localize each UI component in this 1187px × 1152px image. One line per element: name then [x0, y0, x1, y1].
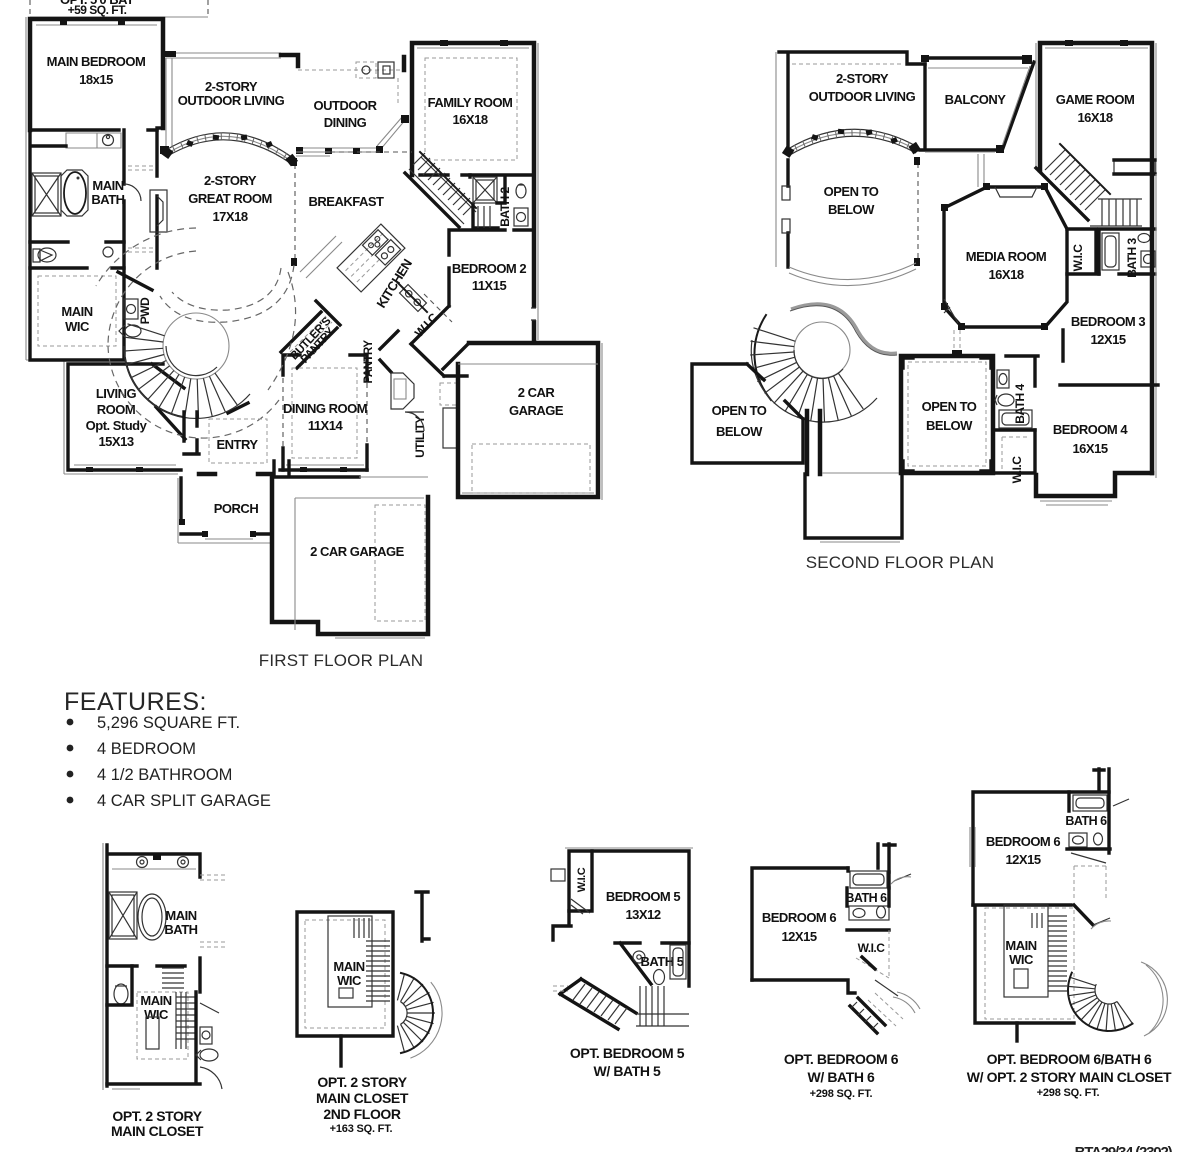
- svg-text:MAIN: MAIN: [92, 178, 123, 193]
- svg-text:MEDIA ROOM: MEDIA ROOM: [966, 249, 1046, 264]
- svg-text:SECOND FLOOR PLAN: SECOND FLOOR PLAN: [806, 553, 995, 572]
- svg-text:BEDROOM 4: BEDROOM 4: [1053, 422, 1129, 437]
- svg-text:+298 SQ. FT.: +298 SQ. FT.: [810, 1088, 873, 1100]
- svg-text:FIRST FLOOR PLAN: FIRST FLOOR PLAN: [259, 651, 423, 670]
- svg-text:OPT. 2 STORY: OPT. 2 STORY: [112, 1108, 202, 1124]
- svg-text:BATH 2: BATH 2: [498, 186, 512, 226]
- svg-text:LIVING: LIVING: [96, 386, 137, 401]
- svg-text:OPT. 2 STORY: OPT. 2 STORY: [317, 1074, 407, 1090]
- svg-text:FAMILY ROOM: FAMILY ROOM: [428, 95, 513, 110]
- svg-text:BEDROOM 3: BEDROOM 3: [1071, 314, 1146, 329]
- svg-text:WIC: WIC: [1009, 952, 1034, 967]
- svg-text:2-STORY: 2-STORY: [205, 79, 258, 94]
- svg-text:16X18: 16X18: [452, 112, 487, 127]
- svg-text:16X15: 16X15: [1072, 441, 1107, 456]
- svg-text:GAME ROOM: GAME ROOM: [1056, 92, 1135, 107]
- svg-text:DINING: DINING: [324, 115, 367, 130]
- svg-text:OUTDOOR LIVING: OUTDOOR LIVING: [178, 93, 285, 108]
- svg-text:+163 SQ. FT.: +163 SQ. FT.: [330, 1123, 393, 1135]
- svg-text:WIC: WIC: [144, 1007, 169, 1022]
- svg-text:BALCONY: BALCONY: [945, 92, 1007, 107]
- svg-text:2-STORY: 2-STORY: [204, 173, 257, 188]
- svg-text:BATH 6: BATH 6: [845, 891, 887, 905]
- svg-text:16X18: 16X18: [988, 267, 1023, 282]
- svg-text:4 CAR SPLIT GARAGE: 4 CAR SPLIT GARAGE: [97, 792, 271, 810]
- svg-text:W.I.C: W.I.C: [576, 867, 588, 892]
- svg-text:11X15: 11X15: [472, 278, 507, 293]
- svg-text:BELOW: BELOW: [828, 202, 875, 217]
- svg-text:OPT. BEDROOM 6/BATH 6: OPT. BEDROOM 6/BATH 6: [987, 1051, 1152, 1067]
- svg-text:BATH 5: BATH 5: [641, 954, 684, 969]
- svg-text:OPT. BEDROOM 5: OPT. BEDROOM 5: [570, 1045, 685, 1061]
- svg-text:12X15: 12X15: [781, 929, 816, 944]
- svg-text:12X15: 12X15: [1005, 852, 1040, 867]
- svg-text:GARAGE: GARAGE: [509, 403, 564, 418]
- svg-text:17X18: 17X18: [212, 209, 247, 224]
- svg-text:BEDROOM 6: BEDROOM 6: [762, 910, 837, 925]
- svg-text:MAIN CLOSET: MAIN CLOSET: [111, 1123, 204, 1139]
- svg-text:Opt. Study: Opt. Study: [86, 418, 148, 433]
- svg-text:12X15: 12X15: [1090, 332, 1125, 347]
- svg-text:BEDROOM 2: BEDROOM 2: [452, 261, 527, 276]
- svg-text:W.I.C: W.I.C: [1071, 244, 1085, 272]
- svg-text:OPEN TO: OPEN TO: [712, 403, 767, 418]
- svg-text:OUTDOOR LIVING: OUTDOOR LIVING: [809, 89, 916, 104]
- svg-text:MAIN BEDROOM: MAIN BEDROOM: [47, 54, 146, 69]
- svg-text:PORCH: PORCH: [214, 501, 259, 516]
- svg-text:DINING ROOM: DINING ROOM: [283, 401, 367, 416]
- svg-text:16X18: 16X18: [1077, 110, 1112, 125]
- svg-text:BREAKFAST: BREAKFAST: [309, 194, 385, 209]
- svg-text:PANTRY: PANTRY: [363, 340, 375, 384]
- svg-text:MAIN CLOSET: MAIN CLOSET: [316, 1090, 409, 1106]
- svg-text:4 1/2 BATHROOM: 4 1/2 BATHROOM: [97, 766, 232, 784]
- svg-text:MAIN: MAIN: [61, 304, 92, 319]
- svg-text:OPEN TO: OPEN TO: [922, 399, 977, 414]
- svg-text:11X14: 11X14: [308, 418, 344, 433]
- svg-text:+59 SQ. FT.: +59 SQ. FT.: [68, 3, 127, 17]
- svg-text:WIC: WIC: [65, 319, 90, 334]
- svg-text:W/ OPT. 2 STORY MAIN CLOSET: W/ OPT. 2 STORY MAIN CLOSET: [967, 1069, 1172, 1085]
- svg-text:ROOM: ROOM: [97, 402, 135, 417]
- svg-text:2 CAR GARAGE: 2 CAR GARAGE: [310, 544, 405, 559]
- svg-text:BELOW: BELOW: [926, 418, 973, 433]
- svg-text:BATH: BATH: [164, 922, 197, 937]
- svg-text:BATH 6: BATH 6: [1065, 814, 1107, 828]
- svg-text:+298 SQ. FT.: +298 SQ. FT.: [1037, 1087, 1100, 1099]
- svg-text:ENTRY: ENTRY: [216, 437, 258, 452]
- svg-text:18x15: 18x15: [79, 72, 113, 87]
- svg-text:PWD: PWD: [138, 297, 152, 324]
- svg-text:13X12: 13X12: [625, 907, 660, 922]
- svg-text:5,296 SQUARE FT.: 5,296 SQUARE FT.: [97, 714, 240, 732]
- svg-text:FEATURES:: FEATURES:: [64, 688, 207, 716]
- svg-text:OPEN TO: OPEN TO: [824, 184, 879, 199]
- svg-text:MAIN: MAIN: [140, 993, 171, 1008]
- svg-text:W.I.C: W.I.C: [858, 941, 886, 955]
- svg-text:MAIN: MAIN: [165, 908, 196, 923]
- svg-text:MAIN: MAIN: [1005, 938, 1036, 953]
- svg-text:BEDROOM 6: BEDROOM 6: [986, 834, 1061, 849]
- svg-text:W/ BATH 5: W/ BATH 5: [594, 1063, 662, 1079]
- svg-text:OPT. BEDROOM 6: OPT. BEDROOM 6: [784, 1051, 899, 1067]
- svg-text:BEDROOM 5: BEDROOM 5: [606, 889, 681, 904]
- svg-text:BATH 4: BATH 4: [1013, 383, 1027, 423]
- svg-text:WIC: WIC: [337, 973, 362, 988]
- svg-text:BELOW: BELOW: [716, 424, 763, 439]
- svg-text:OUTDOOR: OUTDOOR: [314, 98, 378, 113]
- svg-text:2-STORY: 2-STORY: [836, 71, 889, 86]
- svg-text:2 CAR: 2 CAR: [518, 385, 556, 400]
- svg-text:UTILITY: UTILITY: [413, 416, 427, 458]
- svg-text:MAIN: MAIN: [333, 959, 364, 974]
- svg-text:BATH: BATH: [91, 192, 124, 207]
- svg-text:GREAT ROOM: GREAT ROOM: [188, 191, 272, 206]
- svg-text:15X13: 15X13: [98, 434, 133, 449]
- svg-text:BTA29/34 (2302): BTA29/34 (2302): [1075, 1144, 1173, 1152]
- svg-text:2ND FLOOR: 2ND FLOOR: [323, 1106, 401, 1122]
- svg-text:W.I.C: W.I.C: [1010, 456, 1024, 484]
- svg-text:4 BEDROOM: 4 BEDROOM: [97, 740, 196, 758]
- svg-text:W/ BATH 6: W/ BATH 6: [808, 1069, 876, 1085]
- svg-text:BATH 3: BATH 3: [1125, 237, 1139, 277]
